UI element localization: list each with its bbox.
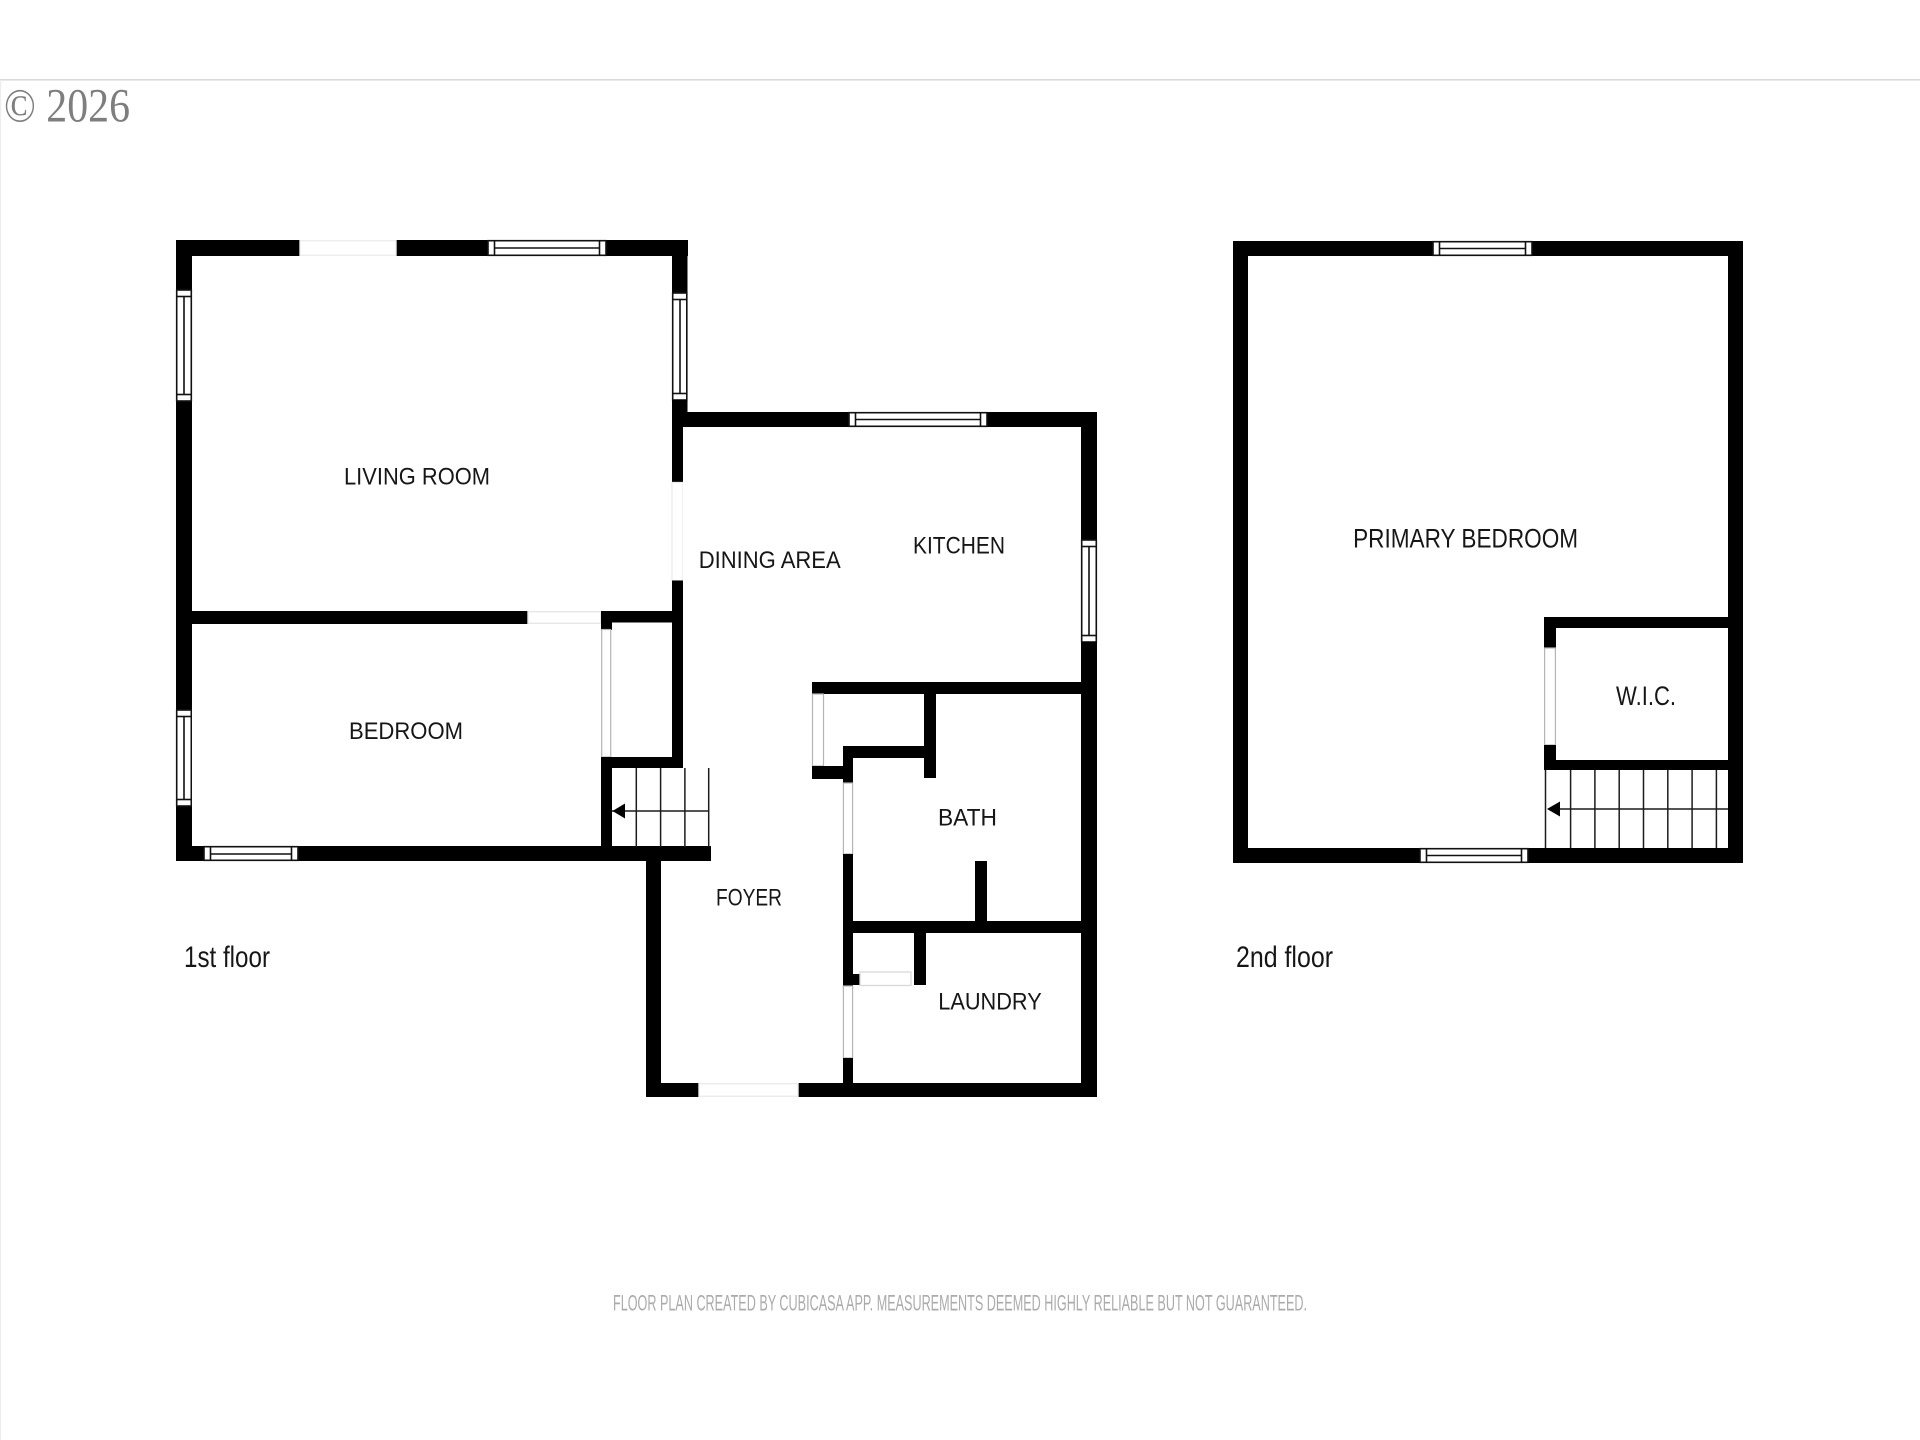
svg-text:W.I.C.: W.I.C. <box>1616 681 1676 711</box>
svg-text:LIVING ROOM: LIVING ROOM <box>344 464 490 491</box>
svg-text:DINING AREA: DINING AREA <box>699 547 841 574</box>
svg-text:BEDROOM: BEDROOM <box>349 718 463 745</box>
svg-text:FLOOR PLAN CREATED BY CUBICASA: FLOOR PLAN CREATED BY CUBICASA APP. MEAS… <box>613 1291 1307 1316</box>
svg-text:BATH: BATH <box>938 805 997 832</box>
svg-text:PRIMARY BEDROOM: PRIMARY BEDROOM <box>1353 524 1578 554</box>
svg-text:LAUNDRY: LAUNDRY <box>938 989 1042 1016</box>
svg-text:© 2026: © 2026 <box>4 80 130 133</box>
svg-text:FOYER: FOYER <box>716 885 782 912</box>
svg-text:1st floor: 1st floor <box>184 941 270 974</box>
svg-text:KITCHEN: KITCHEN <box>913 533 1005 560</box>
svg-text:2nd floor: 2nd floor <box>1236 941 1333 974</box>
